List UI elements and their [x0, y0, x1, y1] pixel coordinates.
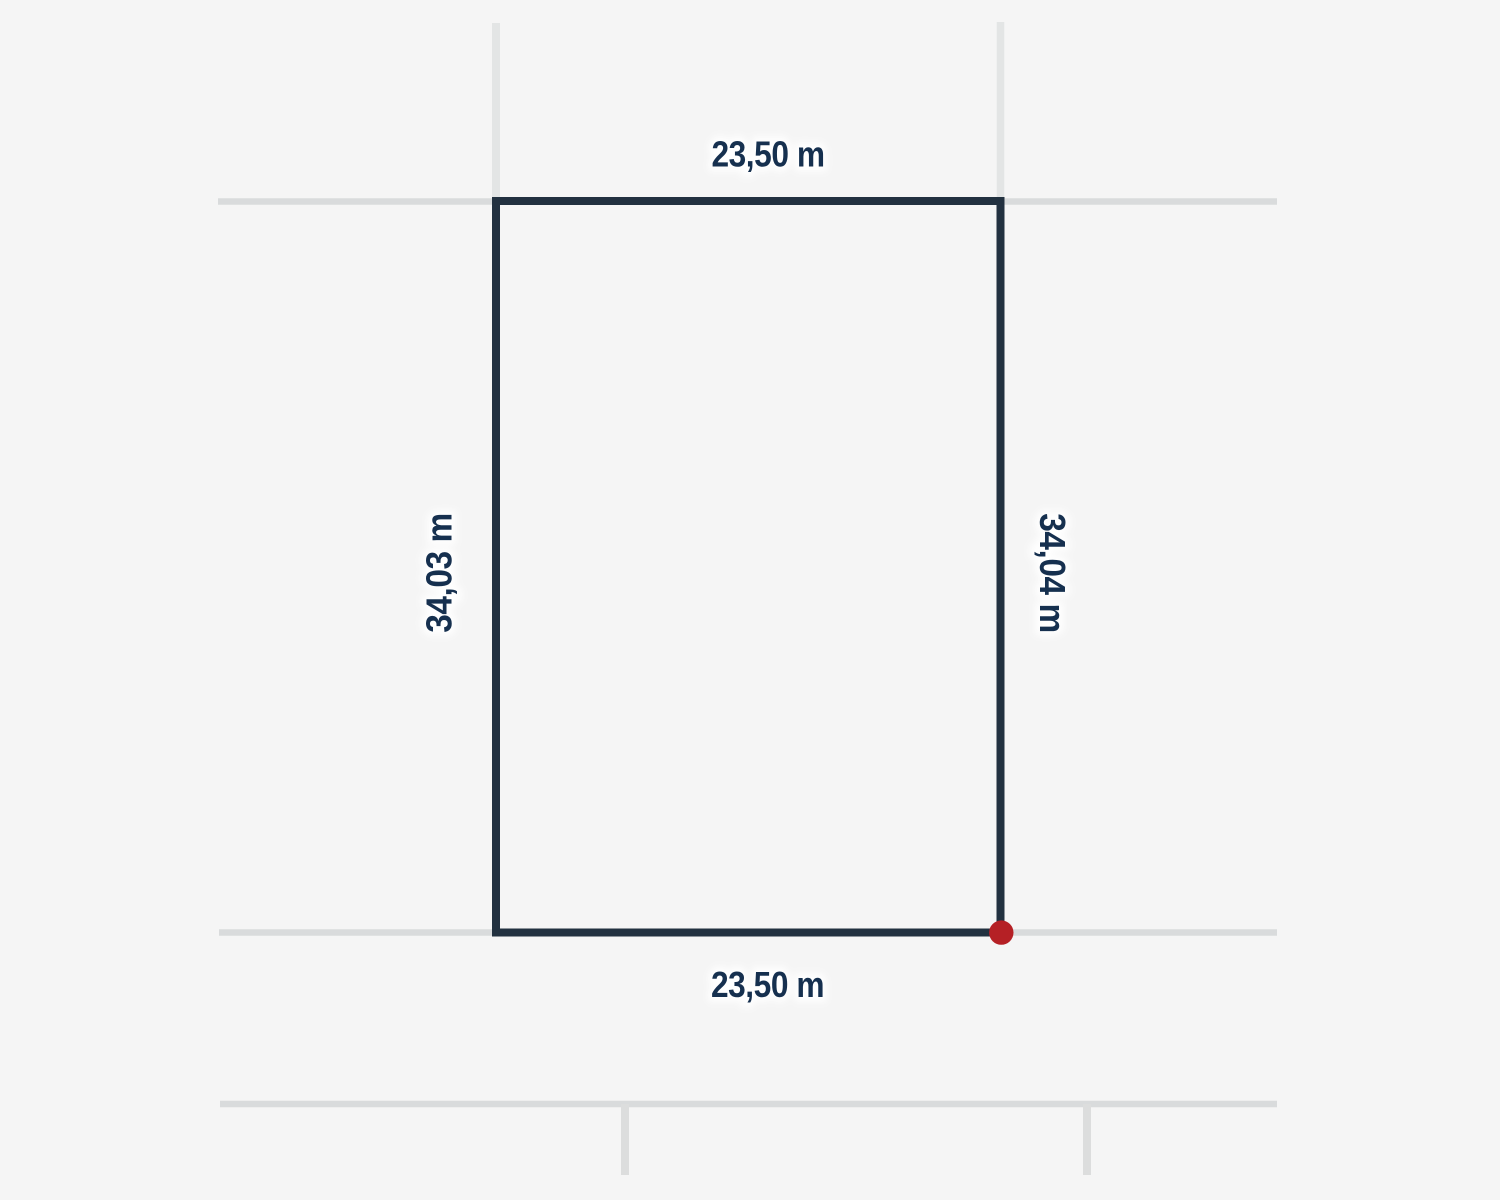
svg-text:34,04 m: 34,04 m — [1032, 513, 1071, 633]
svg-text:34,03 m: 34,03 m — [420, 513, 459, 633]
svg-text:23,50 m: 23,50 m — [711, 135, 824, 175]
svg-text:23,50 m: 23,50 m — [711, 965, 824, 1005]
